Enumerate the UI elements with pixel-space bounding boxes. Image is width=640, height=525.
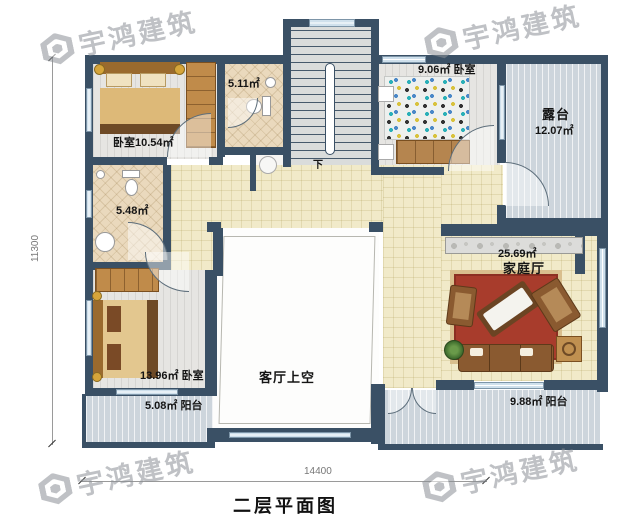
wall-bedroombl-right <box>205 270 217 390</box>
watermark-bottom-left: 宇鸿建筑 <box>36 440 199 511</box>
floor-plan-page: 卧室10.54㎡ 5.11㎡ 9.06㎡ 卧室 露台 12.07㎡ 5.48㎡ … <box>0 0 640 525</box>
bed-bottomleft-lamp-1 <box>92 291 102 301</box>
corridor-right-floor <box>383 165 441 388</box>
bedroom-bottomleft-label: 13.96㎡ 卧室 <box>140 370 204 383</box>
sink-top-small <box>265 77 276 88</box>
brand-logo-icon <box>38 30 76 68</box>
living-void-railing <box>219 236 376 424</box>
sink-left-corner <box>96 170 105 179</box>
brand-logo-icon <box>36 470 74 508</box>
wall-family-bottom-b <box>544 380 600 390</box>
bed-bottomleft-foot <box>147 300 158 378</box>
brand-logo-icon <box>420 468 458 506</box>
nightstand-topright-2 <box>378 144 394 160</box>
window-left-3 <box>86 300 92 356</box>
wall-terrace-right <box>601 55 608 226</box>
sink-left <box>95 232 115 252</box>
bath-top-label: 5.11㎡ <box>228 78 260 91</box>
toilet-left-tank <box>122 170 140 178</box>
balcony-left-label: 5.08㎡ 阳台 <box>145 400 202 413</box>
page-title: 二层平面图 <box>233 492 338 518</box>
bed-bottomleft-pillow-1 <box>107 306 121 332</box>
living-void-label: 客厅上空 <box>259 371 315 386</box>
bedroom-topleft-label: 卧室10.54㎡ <box>113 137 174 150</box>
wall-bedroomtr-bottom <box>371 167 444 175</box>
brand-logo-icon <box>422 24 460 62</box>
stair-window <box>309 19 355 27</box>
watermark-text: 宇鸿建筑 <box>459 0 584 57</box>
window-left-2 <box>86 190 92 218</box>
bedroombl-bottom-window <box>116 389 178 395</box>
wall-stair-left <box>283 19 291 167</box>
wall-bedroomtl-bottom-a <box>85 157 167 165</box>
bed-topleft-lamp-left <box>94 64 105 75</box>
stair-center-rail <box>325 63 335 155</box>
family-bottom-window <box>474 382 544 389</box>
bed-topleft-pillow-2 <box>140 73 166 87</box>
sofa-pillow-2 <box>520 348 533 356</box>
watermark-text: 宇鸿建筑 <box>73 440 198 503</box>
toilet-top-tank <box>262 96 271 116</box>
nightstand-topright-1 <box>378 86 394 102</box>
terrace-name-label: 露台 <box>542 108 570 123</box>
bed-topleft-pillow-1 <box>106 73 132 87</box>
stairs-down-label: 下 <box>313 160 323 172</box>
void-pillar-topright <box>369 222 383 232</box>
wall-bedroomtl-bottom-b <box>209 157 223 165</box>
family-area-label: 25.69㎡ <box>498 248 537 261</box>
wall-void-bottomright <box>371 384 385 444</box>
bedroom-topright-label: 9.06㎡ 卧室 <box>418 64 475 77</box>
bed-topright-mattress <box>384 76 470 140</box>
bed-bottomleft-lamp-2 <box>92 372 102 382</box>
window-left-1 <box>86 88 92 132</box>
bed-bottomleft-headboard <box>93 300 103 378</box>
toilet-left-bowl <box>125 179 138 196</box>
wall-shower-left <box>250 151 256 191</box>
terrace-area-label: 12.07㎡ <box>535 125 574 138</box>
shower-drain <box>259 156 277 174</box>
plant-pot <box>444 340 464 360</box>
bed-topleft-lamp-right <box>174 64 185 75</box>
armchair-left <box>446 285 478 328</box>
dim-width-text: 14400 <box>304 466 332 477</box>
void-bottom-window <box>229 432 351 438</box>
side-table <box>556 336 582 362</box>
wall-family-tv <box>441 224 597 236</box>
bed-topleft-foot <box>100 124 180 134</box>
wall-family-bottom-a <box>436 380 474 390</box>
corridor-terrace-floor <box>441 165 503 225</box>
bed-topleft-body <box>100 88 180 124</box>
bedroomtr-right-window <box>499 85 505 140</box>
side-table-ring <box>562 342 576 356</box>
family-right-window <box>599 248 606 328</box>
armchair-left-seat <box>452 292 471 320</box>
dim-height-text: 11300 <box>30 235 41 262</box>
bedroom-topright-window <box>382 56 426 63</box>
wall-bedroomtl-bath-divider <box>217 55 225 157</box>
wall-void-left <box>213 228 223 276</box>
dim-line-left <box>52 57 53 445</box>
balcony-right-label: 9.88㎡ 阳台 <box>510 396 567 409</box>
watermark-text: 宇鸿建筑 <box>75 0 200 63</box>
wardrobe-bottomleft <box>95 268 159 292</box>
wall-balconyleft-left <box>82 394 86 448</box>
wall-balconyleft-bottom <box>85 442 215 448</box>
family-name-label: 家庭厅 <box>503 262 545 277</box>
bath-left-label: 5.48㎡ <box>116 205 148 218</box>
sofa-pillow-1 <box>470 348 483 356</box>
bed-bottomleft-pillow-2 <box>107 344 121 370</box>
